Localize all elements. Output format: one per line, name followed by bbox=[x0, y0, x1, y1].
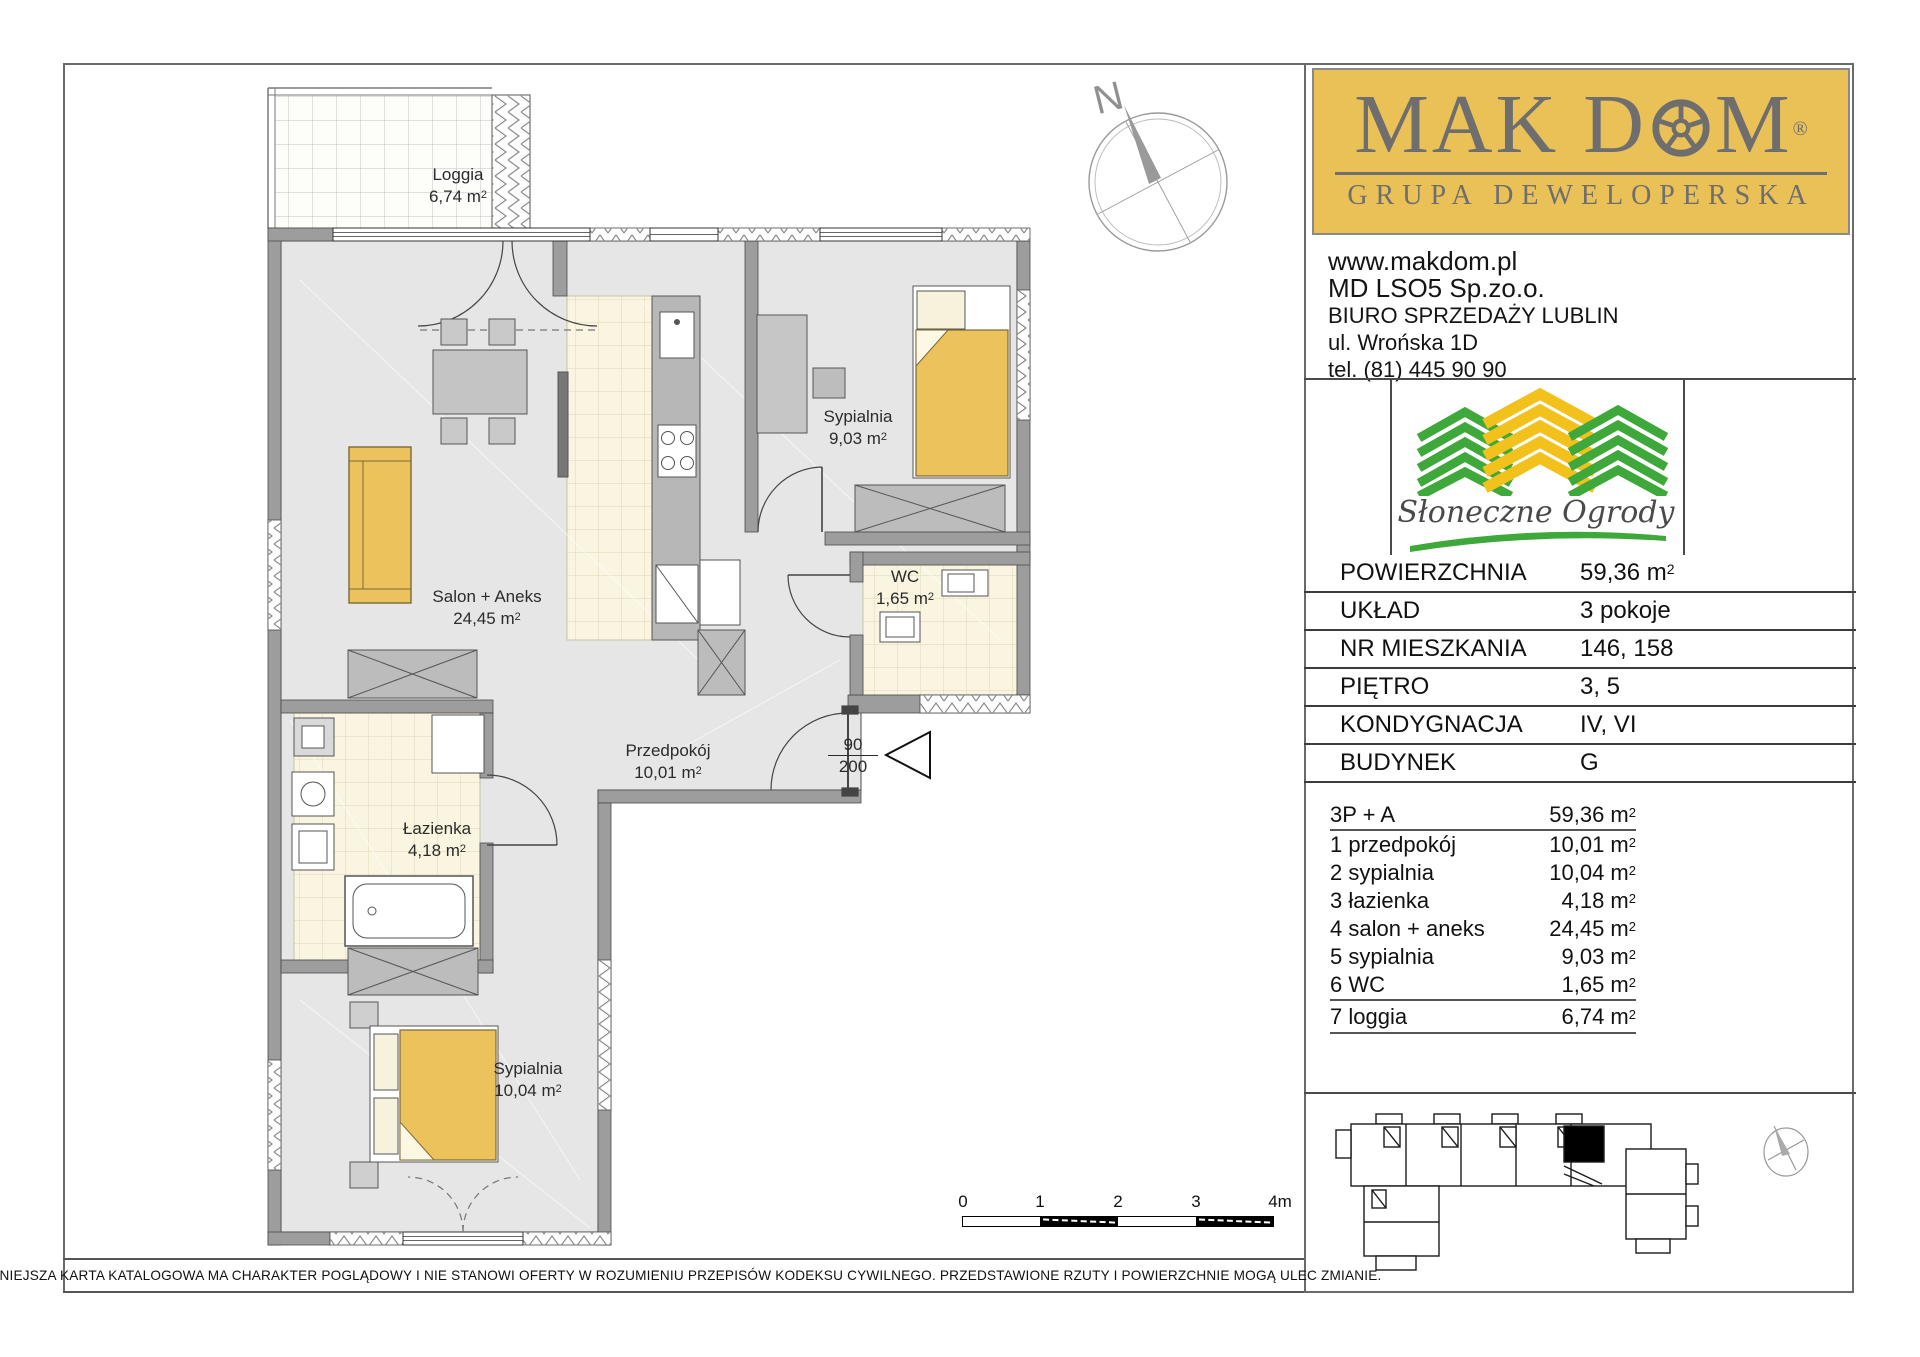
scale-bar-ruler bbox=[962, 1216, 1274, 1227]
brand-name: MAK D M ® bbox=[1314, 82, 1848, 168]
room-label-wc: WC 1,65 m2 bbox=[876, 567, 934, 609]
detail-row-nr-mieszkania: NR MIESZKANIA146, 158 bbox=[1304, 631, 1856, 669]
svg-text:N: N bbox=[1089, 73, 1128, 123]
rooms-list: 3P + A 59,36 m2 1 przedpokój 10,01 m2 2 … bbox=[1330, 800, 1636, 1034]
scale-tick: 4m bbox=[1268, 1192, 1292, 1212]
estate-swoosh-icon bbox=[1408, 530, 1668, 554]
bedroom-bottom-furniture bbox=[348, 948, 498, 1188]
room-row: 2 sypialnia 10,04 m2 bbox=[1330, 859, 1636, 887]
room-row: 1 przedpokój 10,01 m2 bbox=[1330, 831, 1636, 859]
sofa bbox=[349, 447, 411, 603]
bathtub bbox=[345, 876, 473, 946]
contact-block: www.makdom.pl MD LSO5 Sp.zo.o. BIURO SPR… bbox=[1328, 248, 1619, 383]
disclaimer-strip: NINIEJSZA KARTA KATALOGOWA MA CHARAKTER … bbox=[63, 1258, 1304, 1293]
estate-cell-right bbox=[1683, 378, 1685, 555]
brand-logo-box: MAK D M ® GRUPA DEWELOPERSKA bbox=[1312, 68, 1850, 235]
rooms-header: 3P + A 59,36 m2 bbox=[1330, 800, 1636, 831]
loggia-area bbox=[268, 88, 530, 228]
room-label-bedroom-bottom: Sypialnia 10,04 m2 bbox=[494, 1059, 563, 1101]
detail-row-pietro: PIĘTRO3, 5 bbox=[1304, 669, 1856, 707]
mini-compass-icon bbox=[1764, 1126, 1808, 1176]
room-label-loggia: Loggia 6,74 m2 bbox=[429, 165, 487, 207]
detail-row-uklad: UKŁAD3 pokoje bbox=[1304, 593, 1856, 631]
estate-cell-left bbox=[1390, 378, 1392, 555]
scale-tick: 0 bbox=[958, 1192, 967, 1212]
catalog-card-page: N Loggia 6,74 m2 Salon + Aneks 24,45 m2 … bbox=[0, 0, 1920, 1357]
wardrobe-x bbox=[348, 650, 477, 698]
tv-panel bbox=[558, 372, 568, 477]
compass-icon: N bbox=[1089, 73, 1227, 251]
building-site-plan bbox=[1306, 1094, 1854, 1291]
loggia-side-wall bbox=[492, 95, 530, 228]
detail-row-budynek: BUDYNEKG bbox=[1304, 745, 1856, 783]
wardrobe-x bbox=[348, 948, 478, 995]
estate-name: Słoneczne Ogrody bbox=[1398, 495, 1675, 530]
kitchen-counter bbox=[652, 296, 700, 640]
estate-logo-icon bbox=[1400, 386, 1675, 496]
wardrobe-x bbox=[855, 485, 1005, 532]
entrance-door-size-label: 90 200 bbox=[828, 735, 878, 776]
room-label-bathroom: Łazienka 4,18 m2 bbox=[403, 819, 471, 861]
brand-name-right: M bbox=[1715, 86, 1793, 164]
wardrobe-x bbox=[698, 630, 745, 695]
room-label-bedroom-top: Sypialnia 9,03 m2 bbox=[824, 407, 893, 449]
room-row: 4 salon + aneks 24,45 m2 bbox=[1330, 915, 1636, 943]
room-row: 3 łazienka 4,18 m2 bbox=[1330, 887, 1636, 915]
washing-machine bbox=[292, 772, 334, 816]
brand-tagline: GRUPA DEWELOPERSKA bbox=[1314, 180, 1848, 212]
company-name: MD LSO5 Sp.zo.o. bbox=[1328, 275, 1619, 302]
website-link[interactable]: www.makdom.pl bbox=[1328, 248, 1619, 275]
entrance-arrow-icon bbox=[886, 732, 930, 778]
detail-row-powierzchnia: POWIERZCHNIA 59,36 m2 bbox=[1304, 555, 1856, 593]
registered-mark: ® bbox=[1793, 90, 1808, 168]
room-label-salon: Salon + Aneks 24,45 m2 bbox=[432, 587, 541, 629]
floor-plan: N bbox=[63, 63, 1304, 1293]
scale-tick: 3 bbox=[1191, 1192, 1200, 1212]
brand-rule bbox=[1335, 172, 1827, 175]
room-label-hall: Przedpokój 10,01 m2 bbox=[625, 741, 710, 783]
scale-tick: 1 bbox=[1035, 1192, 1044, 1212]
flower-icon bbox=[1650, 97, 1712, 159]
street-address: ul. Wrońska 1D bbox=[1328, 329, 1619, 356]
sales-office: BIURO SPRZEDAŻY LUBLIN bbox=[1328, 302, 1619, 329]
brand-name-left: MAK D bbox=[1354, 86, 1647, 164]
section-line bbox=[1304, 378, 1856, 380]
detail-row-kondygnacja: KONDYGNACJAIV, VI bbox=[1304, 707, 1856, 745]
room-row-loggia: 7 loggia 6,74 m2 bbox=[1330, 999, 1636, 1034]
room-row: 6 WC 1,65 m2 bbox=[1330, 971, 1636, 999]
disclaimer-text: NINIEJSZA KARTA KATALOGOWA MA CHARAKTER … bbox=[0, 1268, 1382, 1283]
scale-tick: 2 bbox=[1113, 1192, 1122, 1212]
room-row: 5 sypialnia 9,03 m2 bbox=[1330, 943, 1636, 971]
highlighted-unit bbox=[1564, 1126, 1604, 1162]
